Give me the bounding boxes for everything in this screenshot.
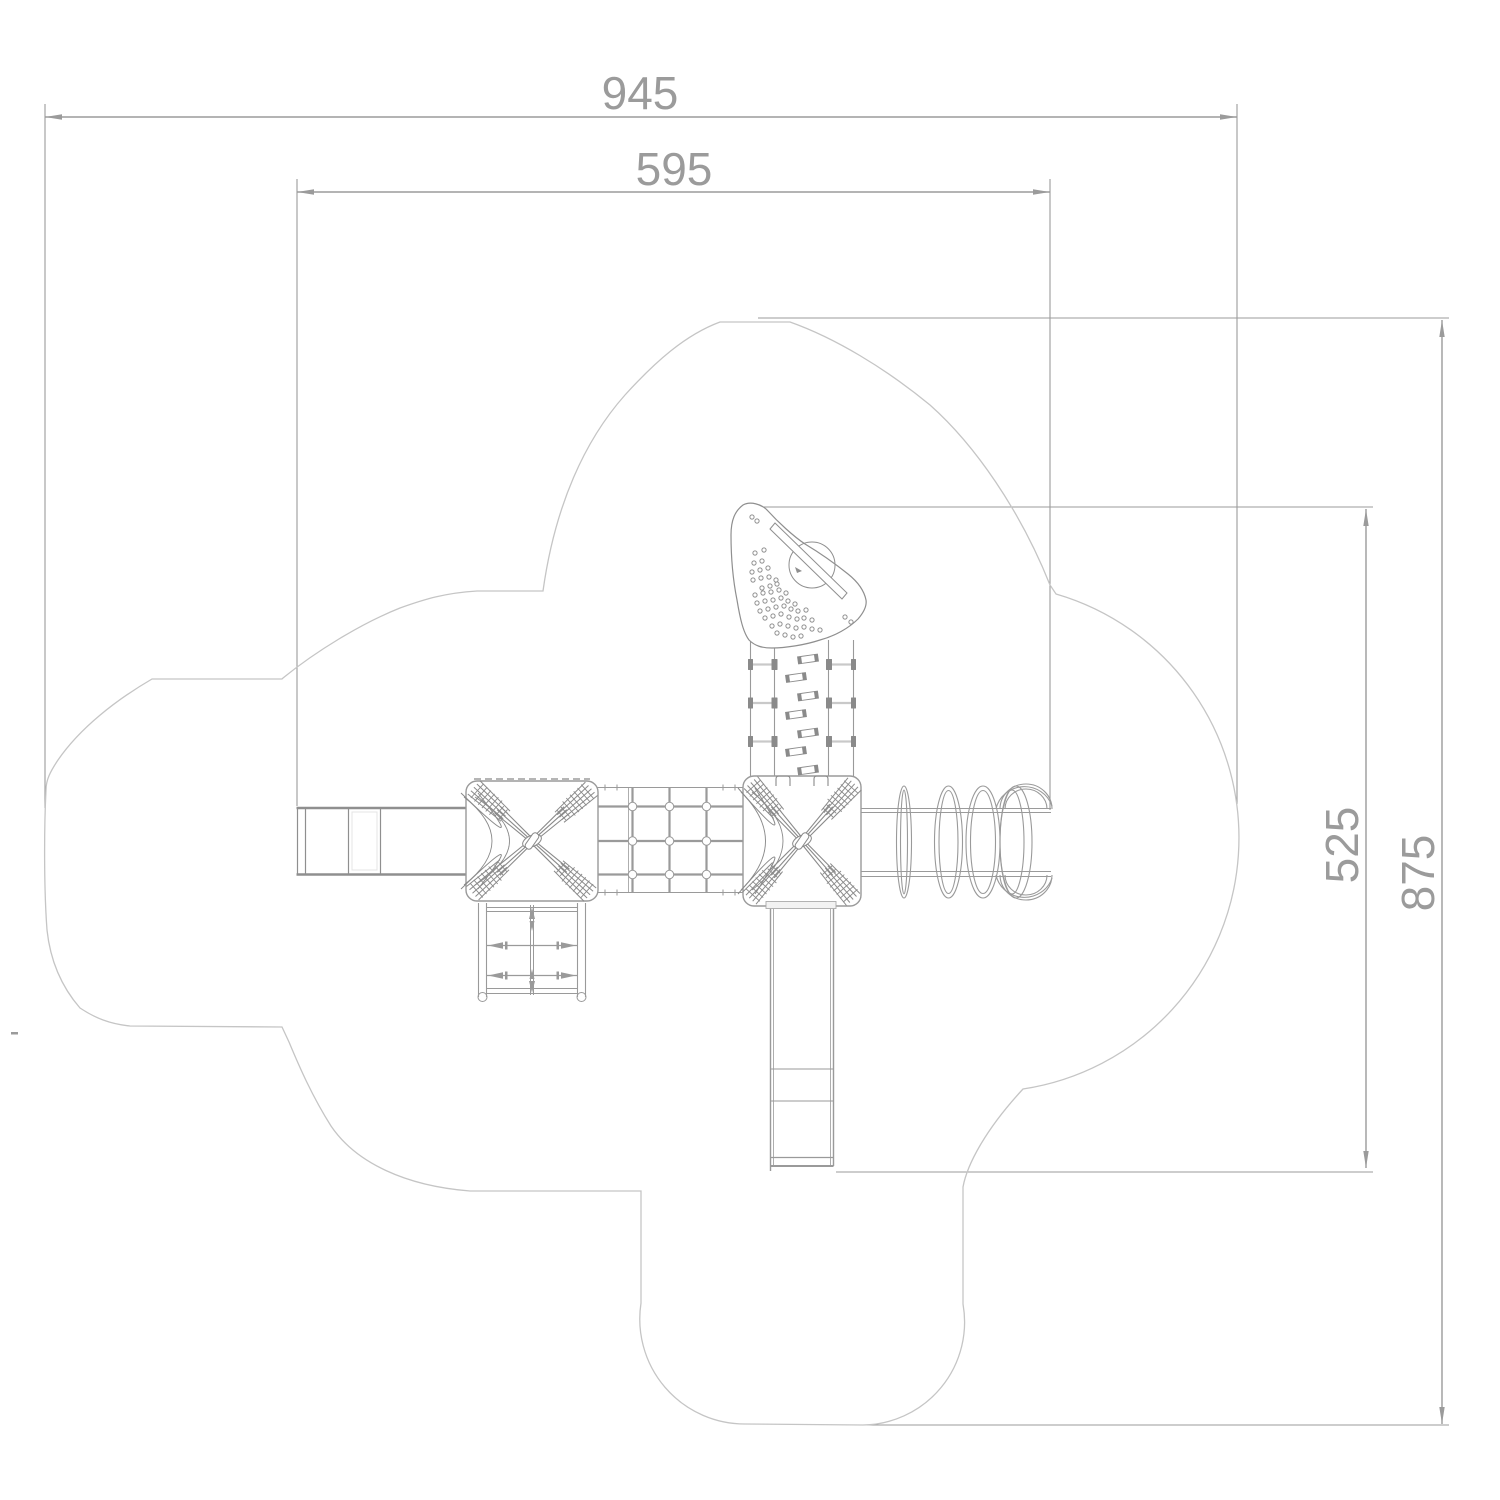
svg-text:875: 875 <box>1392 835 1444 912</box>
svg-text:945: 945 <box>602 67 679 119</box>
svg-text:595: 595 <box>636 143 713 195</box>
svg-text:525: 525 <box>1316 807 1368 884</box>
